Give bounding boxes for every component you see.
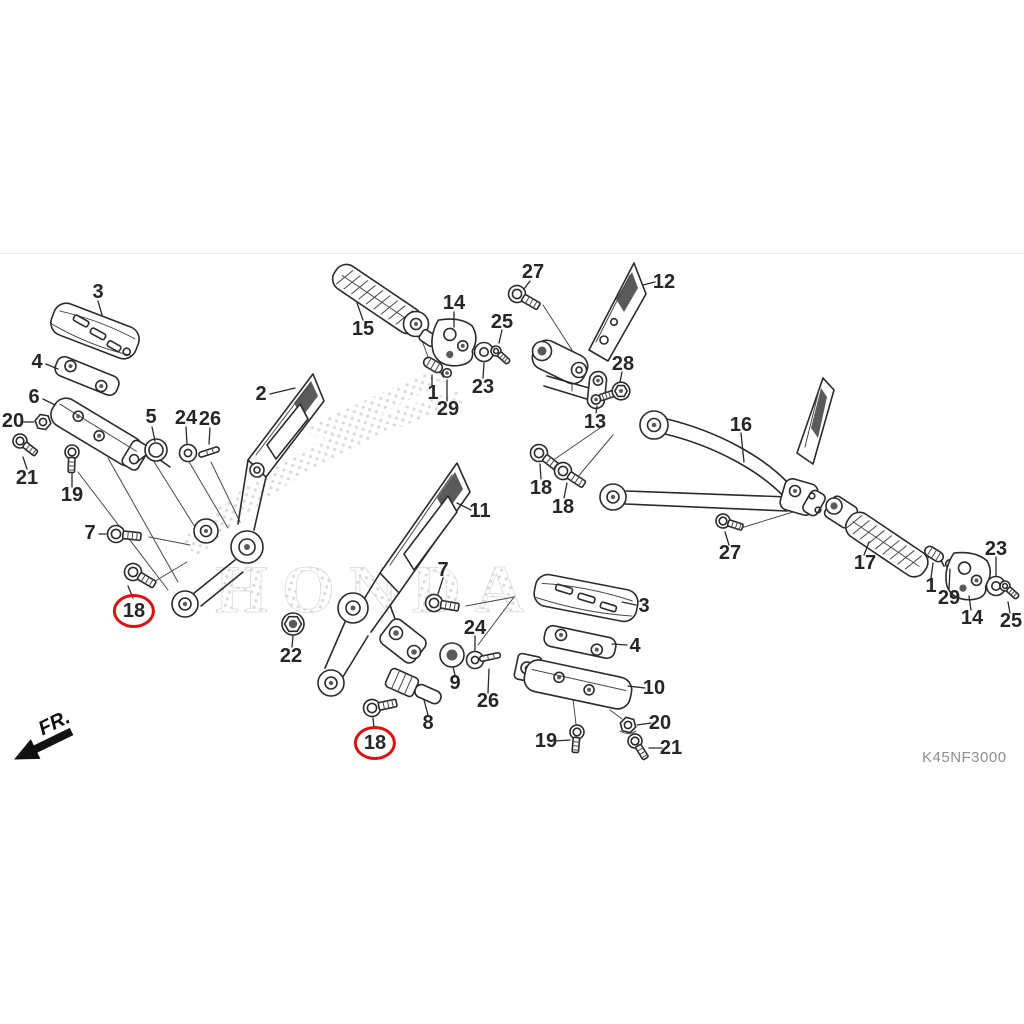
part-label-16: 16 (730, 415, 752, 435)
part-label-1: 1 (925, 576, 936, 596)
part-label-19: 19 (61, 485, 83, 505)
part-label-25: 25 (1000, 611, 1022, 631)
part-label-20: 20 (2, 411, 24, 431)
part-label-15: 15 (352, 319, 374, 339)
part-label-27: 27 (522, 262, 544, 282)
part-label-17: 17 (854, 553, 876, 573)
parts-diagram-page: HONDA (0, 0, 1024, 1024)
part-label-18-highlighted: 18 (354, 726, 396, 760)
part-label-11: 11 (469, 501, 490, 521)
part-label-21: 21 (16, 468, 38, 488)
part-label-26: 26 (477, 691, 499, 711)
part-label-24: 24 (464, 618, 486, 638)
part-label-14: 14 (443, 293, 465, 313)
part-label-28: 28 (612, 354, 634, 374)
part-label-29: 29 (938, 588, 960, 608)
part-label-20: 20 (649, 713, 671, 733)
part-label-6: 6 (28, 387, 39, 407)
part-label-23: 23 (472, 377, 494, 397)
part-label-13: 13 (584, 412, 606, 432)
part-label-23: 23 (985, 539, 1007, 559)
part-label-18: 18 (530, 478, 552, 498)
part-label-3: 3 (92, 282, 103, 302)
part-label-2: 2 (255, 384, 266, 404)
part-label-27: 27 (719, 543, 741, 563)
part-label-8: 8 (422, 713, 433, 733)
part-label-4: 4 (629, 636, 640, 656)
part-label-7: 7 (437, 560, 448, 580)
part-label-19: 19 (535, 731, 557, 751)
part-label-24: 24 (175, 408, 197, 428)
part-label-9: 9 (449, 673, 460, 693)
part-label-26: 26 (199, 409, 221, 429)
part-label-18: 18 (552, 497, 574, 517)
part-label-22: 22 (280, 646, 302, 666)
part-label-18-highlighted: 18 (113, 594, 155, 628)
part-label-7: 7 (84, 523, 95, 543)
part-label-12: 12 (653, 272, 675, 292)
labels-layer: 3462021195242627182215142527231291172492… (0, 0, 1024, 1024)
part-label-14: 14 (961, 608, 983, 628)
part-label-29: 29 (437, 399, 459, 419)
diagram-code: K45NF3000 (922, 749, 1007, 766)
part-label-5: 5 (145, 407, 156, 427)
part-label-21: 21 (660, 738, 682, 758)
part-label-25: 25 (491, 312, 513, 332)
part-label-4: 4 (31, 352, 42, 372)
part-label-3: 3 (638, 596, 649, 616)
part-label-10: 10 (643, 678, 665, 698)
